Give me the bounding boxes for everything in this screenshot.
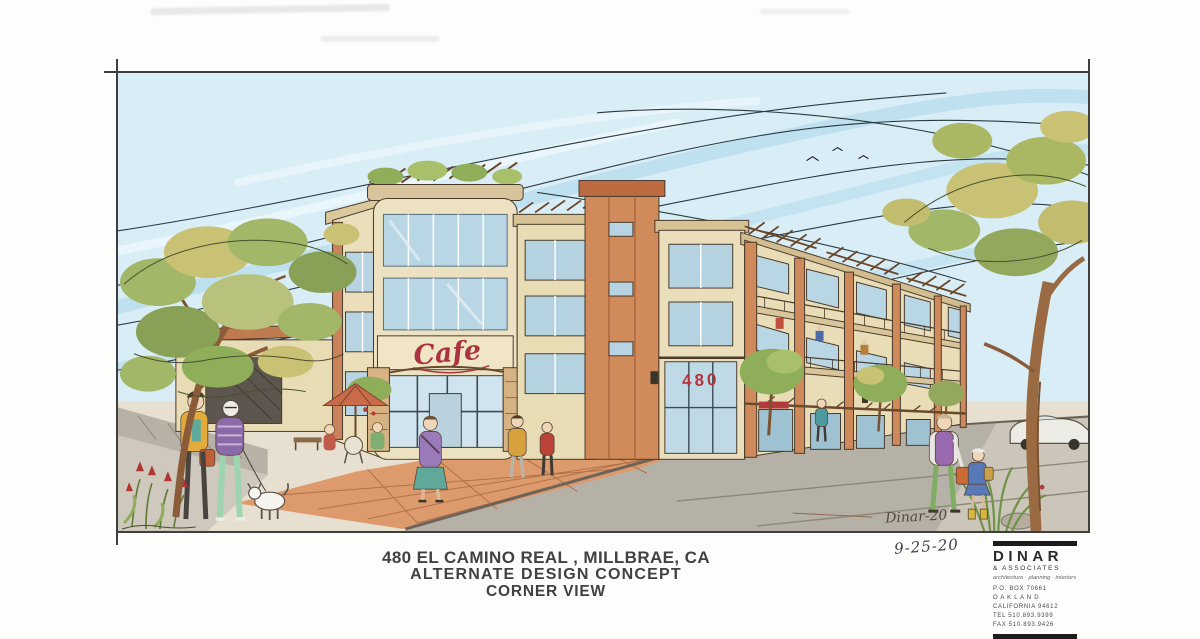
address-number-sign: 480 [682, 370, 720, 390]
entrance-bay: 480 [651, 220, 754, 459]
firm-address-line: P.O. BOX 70661 [993, 585, 1077, 594]
firm-address: P.O. BOX 70661 O A K L A N D CALIFORNIA … [993, 585, 1077, 630]
storefront-sign [759, 402, 789, 409]
date-note: 9-25-20 [894, 532, 1005, 558]
caption-address: 480 EL CAMINO REAL , MILLBRAE, CA [296, 549, 796, 566]
scan-artifact [760, 9, 850, 14]
stair-tower [579, 181, 665, 460]
firm-address-line: TEL 510.893.9399 [993, 612, 1077, 621]
caption-view: CORNER VIEW [296, 583, 796, 600]
firm-address-line: O A K L A N D [993, 594, 1077, 603]
scan-artifact [320, 36, 440, 42]
frame-tick [116, 531, 118, 545]
caption-subtitle: ALTERNATE DESIGN CONCEPT [296, 566, 796, 583]
corner-tower: Cafe [367, 161, 525, 460]
drawing-frame: Cafe [116, 71, 1090, 533]
rendering-canvas: Cafe [118, 73, 1088, 531]
firm-suffix: & ASSOCIATES [993, 565, 1077, 573]
firm-tagline: architecture · planning · interiors [993, 575, 1077, 582]
scanned-sheet: { "title_block": { "line1": "480 EL CAMI… [0, 0, 1200, 630]
firm-logo-block: DINAR & ASSOCIATES architecture · planni… [993, 541, 1077, 639]
scan-artifact [150, 4, 390, 15]
caption-block: 480 EL CAMINO REAL , MILLBRAE, CA ALTERN… [296, 549, 796, 600]
svg-text:Dinar-20: Dinar-20 [884, 507, 948, 526]
firm-address-line: CALIFORNIA 94612 [993, 603, 1077, 612]
logo-bar-top [993, 541, 1077, 546]
firm-address-line: FAX 510.893.9426 [993, 621, 1077, 630]
logo-bar-bottom [993, 634, 1077, 639]
firm-name: DINAR [993, 549, 1077, 565]
